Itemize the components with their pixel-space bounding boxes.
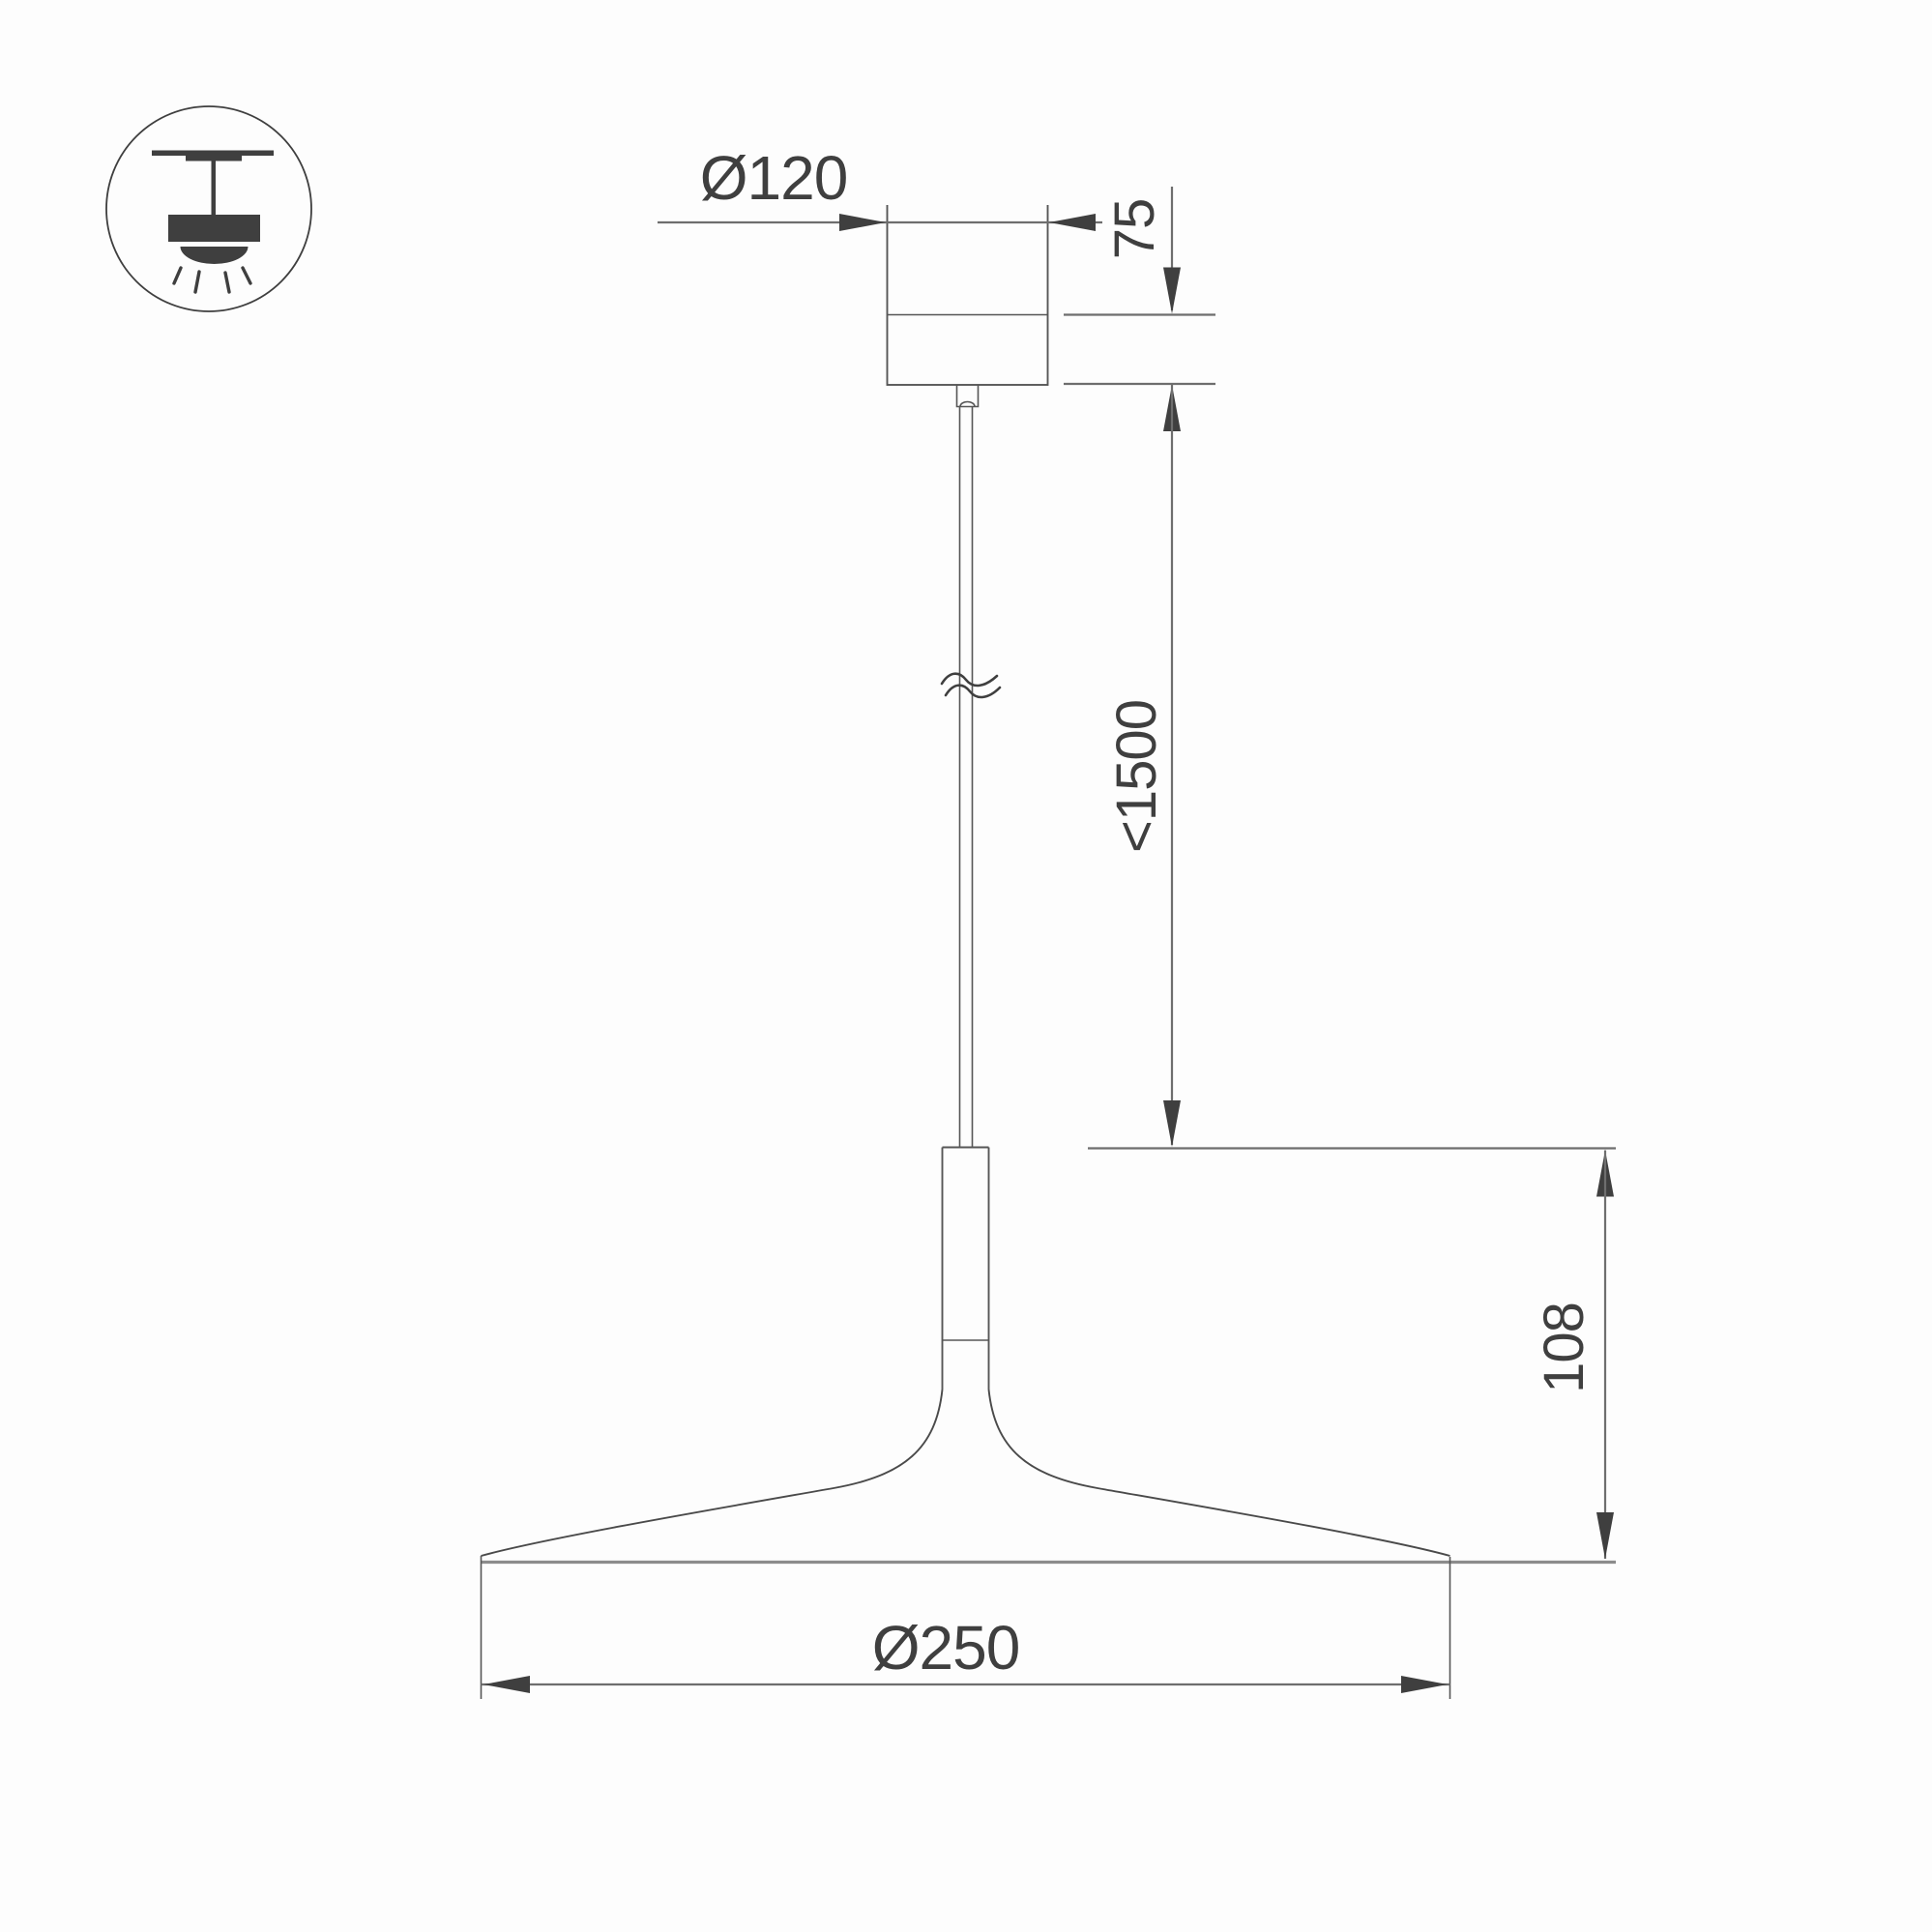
cable-gland [957,385,979,407]
arrowhead-left-icon [1049,214,1096,231]
icon-ceiling-line [152,151,274,157]
dimension-canopy-diameter [658,214,1102,231]
arrowhead-down-icon [1163,268,1181,314]
label-suspension-length: <1500 [1109,700,1165,853]
dimension-shade-height [1596,1151,1614,1560]
label-canopy-height: 75 [1107,199,1163,260]
icon-canopy-plate [186,156,242,161]
arrowhead-down-icon [1596,1512,1614,1559]
arrowhead-down-icon [1163,1100,1181,1147]
label-shade-height: 108 [1537,1303,1593,1393]
arrowhead-left-icon [483,1676,530,1693]
icon-suspension-rod [212,161,217,216]
break-symbol-upper [942,674,997,686]
shade-flare-right [989,1390,1450,1556]
shade-flare-left [482,1390,943,1556]
pendant-lamp-icon [106,106,311,311]
canopy-outline [888,205,1048,407]
canopy-body [888,222,1048,385]
suspension-cable [942,407,1000,1148]
icon-circle-border [106,106,311,311]
icon-lamp-dome [181,247,249,264]
icon-light-rays [174,268,250,292]
label-canopy-diameter: Ø120 [700,147,848,209]
technical-drawing-canvas: Ø120 75 <1500 108 Ø250 [0,0,1932,1932]
arrowhead-right-icon [1401,1676,1448,1693]
icon-lamp-body [168,215,260,242]
arrowhead-right-icon [839,214,886,231]
label-shade-diameter: Ø250 [872,1617,1020,1679]
lamp-shade [481,1148,1616,1563]
